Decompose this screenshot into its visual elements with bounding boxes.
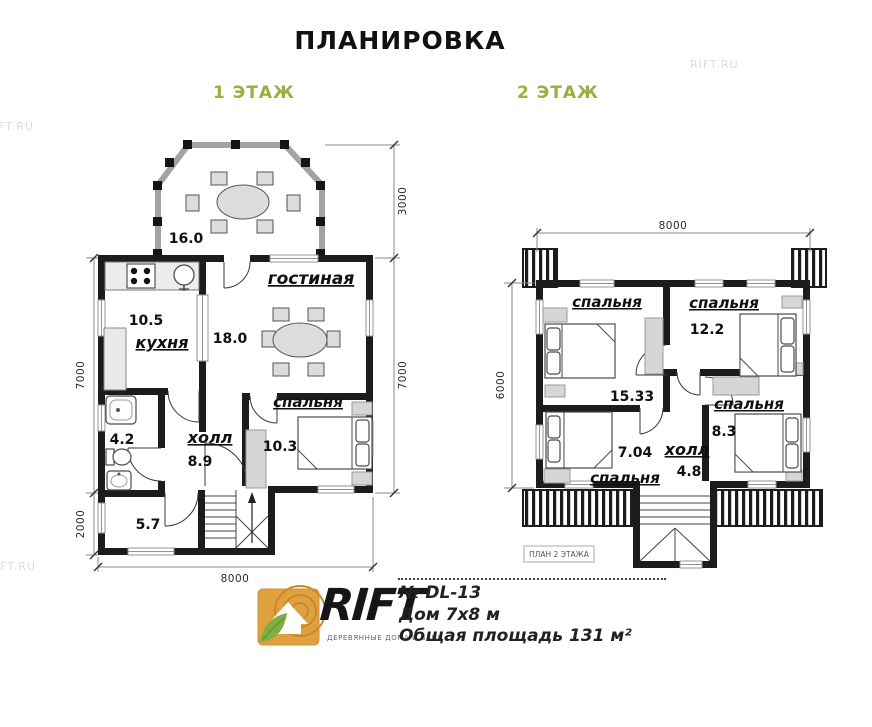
- bedroom4-name: спальня: [590, 469, 660, 487]
- floorplan-page: ПЛАНИРОВКА 1 ЭТАЖ 2 ЭТАЖ RIFT.RU IFT.RU …: [0, 0, 872, 727]
- dim-left-entry: 2000: [75, 510, 87, 539]
- bed1-icon: [545, 324, 615, 378]
- entry-area: 5.7: [136, 517, 161, 533]
- dresser: [544, 469, 570, 483]
- veranda: 16.0: [153, 140, 325, 258]
- bedroom-name: спальня: [273, 393, 343, 411]
- living-dining-table: [262, 308, 340, 376]
- wardrobe: [645, 318, 663, 374]
- nightstand: [543, 308, 567, 322]
- house-model: № DL-13: [399, 583, 632, 605]
- double-bed-icon: [298, 417, 372, 469]
- living-area: 18.0: [213, 331, 248, 347]
- veranda-area: 16.0: [169, 231, 204, 247]
- rift-logo-icon: [258, 586, 325, 645]
- bath-sink-icon: [107, 471, 131, 490]
- bed4-icon: [546, 412, 612, 468]
- floor2-hall-name: холл: [664, 440, 710, 459]
- floor2-dim-left: 6000: [495, 371, 507, 400]
- house-total-area: Общая площадь 131 м²: [399, 626, 632, 648]
- bedroom3-area: 8.3: [712, 424, 737, 440]
- floor2-plan: ПЛАН 2 ЭТАЖА спальня 15.33 спальня 12.2 …: [495, 220, 826, 568]
- house-size: Дом 7х8 м: [399, 605, 632, 627]
- bedroom4-area: 7.04: [618, 445, 653, 461]
- dim-right-veranda: 3000: [397, 187, 409, 216]
- living-name: гостиная: [268, 269, 355, 289]
- bedroom3-name: спальня: [714, 395, 784, 413]
- bed3-icon: [735, 414, 801, 472]
- dim-right-main: 7000: [397, 361, 409, 390]
- bed2-icon: [740, 314, 796, 376]
- bath-area: 4.2: [110, 432, 135, 448]
- toilet-icon: [106, 449, 131, 465]
- nightstand: [545, 385, 565, 397]
- bedroom2-area: 12.2: [690, 322, 725, 338]
- nightstand: [352, 402, 372, 415]
- house-info: № DL-13 Дом 7х8 м Общая площадь 131 м²: [399, 583, 632, 648]
- wardrobe: [713, 377, 759, 395]
- floor2-dim-top: 8000: [659, 220, 688, 232]
- hall-area: 8.9: [188, 454, 213, 470]
- bedroom1-area: 15.33: [610, 389, 654, 405]
- nightstand: [782, 296, 802, 308]
- bedroom-area: 10.3: [263, 439, 298, 455]
- bedroom2-name: спальня: [689, 294, 759, 312]
- dim-left-main: 7000: [75, 361, 87, 390]
- dim-bottom: 8000: [221, 573, 250, 585]
- stairs-up-arrow: [248, 492, 256, 503]
- floor2-hall-area: 4.8: [677, 464, 702, 480]
- kitchen-area: 10.5: [129, 313, 164, 329]
- stove-icon: [127, 264, 155, 288]
- floor1-stairs: [205, 490, 268, 548]
- floor2-stairs: [640, 496, 710, 561]
- kitchen-name: кухня: [136, 333, 189, 352]
- nightstand: [352, 472, 372, 485]
- floor1-plan: 16.0: [75, 140, 409, 585]
- bedroom1-name: спальня: [572, 293, 642, 311]
- footer-divider: [398, 578, 666, 580]
- floor2-caption-box: ПЛАН 2 ЭТАЖА: [524, 546, 594, 562]
- hall-name: холл: [187, 428, 233, 447]
- floor2-caption: ПЛАН 2 ЭТАЖА: [529, 550, 590, 559]
